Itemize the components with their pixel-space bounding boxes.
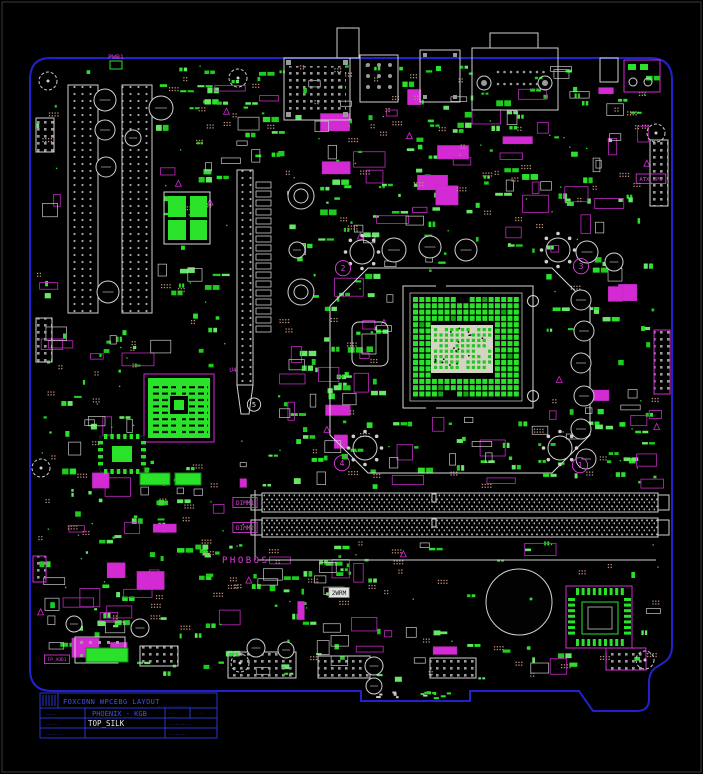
socket-pad [413,341,418,346]
speck [133,425,134,426]
smd-part [447,692,451,694]
via-cluster [577,198,578,199]
smd-part [107,540,113,544]
via-cluster [98,401,99,402]
via-cluster [379,477,380,478]
smd-part [263,117,270,122]
via-cluster [482,484,483,485]
smd-part [518,421,522,426]
via-cluster [310,656,311,657]
slot-pin [256,254,271,260]
via-cluster [634,183,635,184]
via-cluster [308,581,309,582]
via-cluster [401,121,402,122]
vga-connector-tab [490,33,538,48]
via-cluster [586,472,587,473]
socket-pad [514,335,519,340]
smd-part [303,427,307,432]
via-cluster [229,125,230,126]
sio-pad [568,626,575,629]
via-cluster [116,618,117,619]
vga-pin [523,71,526,74]
via-cluster [579,286,580,287]
via-cluster [207,540,208,541]
via-cluster [58,365,59,366]
via-cluster [159,615,160,616]
via-cluster [592,474,593,475]
via-cluster [228,588,229,589]
socket-pad [501,360,506,365]
smd-part [377,629,380,634]
triangle-marker [175,180,181,186]
smd-part [407,148,414,151]
smd-part [535,77,538,79]
smd-part [195,633,198,638]
smd-part [654,76,661,81]
cavity-pad [466,339,469,342]
socket-pad [426,303,431,308]
socket-pad [508,316,513,321]
via-cluster [159,604,160,605]
smd-part [481,93,484,95]
speck [569,146,570,147]
via-cluster [569,667,570,668]
smd-part [373,274,380,279]
via-cluster [502,649,503,650]
smd-part [609,452,613,455]
via-cluster [576,286,577,287]
cavity-pad [439,339,442,342]
smd-part [204,665,210,669]
via-cluster [58,368,59,369]
via-cluster [134,341,135,342]
via-cluster [316,449,317,450]
slot-pin [256,200,271,206]
via-cluster [161,284,162,285]
socket-pad [438,392,443,397]
super-io-chip [566,586,632,648]
smd-part [543,460,546,463]
smd-part [325,307,330,311]
via-cluster [204,110,205,111]
speck [586,148,587,149]
qfn-pad [110,469,113,474]
connector-outline [433,647,456,654]
via-cluster [240,587,241,588]
qfn-pad [117,434,120,439]
speck [306,607,307,608]
socket-pad [438,297,443,302]
via-cluster [201,110,202,111]
cavity-pad [477,366,480,369]
via-cluster [571,288,572,289]
speck [562,431,563,432]
via-cluster [542,227,543,228]
smd-part [324,456,328,461]
speck [448,230,449,231]
via-cluster [536,224,537,225]
smd-part [68,401,73,406]
socket-notch [436,284,446,289]
via-cluster [534,431,535,432]
smd-part [543,474,549,477]
smd-part [210,70,215,74]
via-cluster [371,124,372,125]
via-cluster [339,601,340,602]
socket-pad [508,385,513,390]
smd-part [217,102,222,105]
titleblock-project: FOXCONN WPCEBG LAYOUT [63,698,160,706]
via-cluster [71,528,72,529]
socket-pad [438,316,443,321]
via-cluster [490,484,491,485]
via-cluster [216,596,217,597]
smd-part [350,221,352,224]
socket-pad [413,392,418,397]
speck [551,544,552,545]
via-cluster [196,143,197,144]
via-cluster [630,114,631,115]
connector-pad [343,60,348,65]
via-cluster [156,618,157,619]
qfn-pad [141,462,146,465]
connector-pad [343,112,348,117]
via-cluster [534,429,535,430]
via-cluster [628,173,629,174]
via-cluster [342,601,343,602]
cavity-pad [456,333,459,336]
left-edge-connector [36,118,54,152]
pin-dot [547,435,551,439]
smd-part [568,328,574,330]
speck [413,599,414,600]
pin-dot [363,463,367,467]
via-cluster [635,111,636,112]
socket-pad [482,379,487,384]
cavity-pad [488,350,491,353]
socket-pad [419,297,424,302]
socket-pad [426,329,431,334]
smd-part [158,518,165,520]
via-cluster [392,552,393,553]
socket-pad [489,385,494,390]
socket-pad [514,392,519,397]
triangle-marker [556,376,562,382]
via-cluster [497,649,498,650]
via-cluster [386,111,387,112]
via-cluster [77,474,78,475]
socket-pad [495,316,500,321]
via-cluster [443,580,444,581]
socket-pad [419,329,424,334]
smd-part [646,342,650,347]
smd-part [336,572,343,576]
connector-outline [356,646,383,652]
via-cluster [162,499,163,500]
connector-outline [354,373,368,392]
via-cluster [49,112,50,113]
socket-pad [489,379,494,384]
via-cluster [500,649,501,650]
speck [134,520,135,521]
silk-outline [420,543,429,548]
slot-pin [256,236,271,242]
via-cluster [51,455,52,456]
via-cluster [161,598,162,599]
via-cluster [511,177,512,178]
smd-part [284,589,290,592]
smd-part [476,203,480,208]
speck [657,566,658,567]
pin-dot [375,458,379,462]
smd-part [272,131,278,134]
via-cluster [204,540,205,541]
cavity-pad [439,344,442,347]
via-cluster [426,641,427,642]
socket-pad [501,379,506,384]
smd-part [570,409,574,415]
via-cluster [465,190,466,191]
via-cluster [207,542,208,543]
via-cluster [355,342,356,343]
smd-part [532,657,535,663]
smd-part [429,270,432,272]
smd-part [103,613,106,619]
smd-part [607,460,611,463]
via-cluster [233,588,234,589]
via-cluster [582,570,583,571]
dimm-latch [658,520,669,535]
via-cluster [502,646,503,647]
smd-part [340,568,343,571]
silk-outline [44,578,65,585]
via-cluster [398,124,399,125]
smd-part [565,199,571,204]
via-cluster [647,653,648,654]
via-cluster [40,273,41,274]
south-qfn-chip [98,434,146,474]
smd-part [382,184,387,186]
via-cluster [459,187,460,188]
socket-pad [470,310,475,315]
smd-part [229,546,232,549]
socket-pad [495,322,500,327]
smd-part [270,585,276,591]
smd-part [263,484,267,486]
silk-outline [323,624,340,632]
via-cluster [450,474,451,475]
usb-header [140,646,178,666]
smd-part [99,499,103,503]
via-cluster [291,328,292,329]
via-cluster [652,603,653,604]
via-cluster [595,189,596,190]
via-cluster [350,342,351,343]
socket-pad [508,335,513,340]
cavity-pad [445,339,448,342]
via-cluster [159,618,160,619]
via-cluster [162,501,163,502]
speck [653,544,654,545]
via-cluster [487,213,488,214]
via-cluster [517,127,518,128]
smd-part [204,70,209,74]
smd-part [94,608,97,610]
socket-pad [482,297,487,302]
smd-part [628,197,632,202]
smd-part [338,555,341,558]
via-cluster [270,128,271,129]
via-cluster [577,201,578,202]
via-cluster [487,211,488,212]
via-cluster [488,175,489,176]
via-cluster [316,581,317,582]
connector-outline [322,162,350,174]
vga-pin [510,71,513,74]
vga-pin [523,83,526,86]
via-cluster [151,615,152,616]
via-cluster [384,590,385,591]
smd-part [371,331,373,333]
smd-part [589,177,593,183]
connector-outline [153,524,176,532]
via-cluster [85,534,86,535]
smd-part [401,422,407,425]
sio-pad [568,632,575,635]
via-cluster [366,170,367,171]
via-cluster [518,664,519,665]
via-cluster [576,288,577,289]
via-cluster [236,585,237,586]
smd-part [371,391,378,395]
via-cluster [461,147,462,148]
via-cluster [207,124,208,125]
via-cluster [603,656,604,657]
via-cluster [419,185,420,186]
via-cluster [539,429,540,430]
via-cluster [622,173,623,174]
silk-outline [317,472,326,485]
smd-part [396,696,399,698]
smd-part [509,126,512,129]
via-cluster [186,626,187,627]
silk-outline [354,225,362,232]
smd-part [184,68,187,72]
sio-pad [624,620,631,623]
cavity-pad [472,339,475,342]
cavity-pad [472,344,475,347]
connector-outline [436,186,458,205]
via-cluster [373,362,374,363]
via-cluster [350,410,351,411]
pin-dot [542,446,546,450]
via-cluster [485,487,486,488]
via-cluster [497,171,498,172]
via-cluster [564,667,565,668]
via-cluster [196,467,197,468]
cavity-pad [445,350,448,353]
smd-part [436,548,442,550]
smd-part [61,401,66,406]
socket-pad [489,310,494,315]
via-cluster [236,580,237,581]
smd-part [70,469,76,475]
cavity-pad [488,333,491,336]
smd-part [504,193,512,196]
smd-part [99,540,105,544]
smd-part [392,692,396,694]
via-cluster [202,143,203,144]
socket-pad [457,392,462,397]
slot-pin [256,245,271,251]
qfn-thermal-pad [112,446,132,462]
via-cluster [633,111,634,112]
cavity-pad [472,355,475,358]
cavity-pad [461,350,464,353]
smd-part [638,481,640,484]
via-cluster [497,174,498,175]
smd-part [184,499,190,503]
socket-pad [419,379,424,384]
socket-pad [457,379,462,384]
smd-part [429,222,432,227]
smd-part [355,280,361,282]
smd-part [409,82,414,87]
via-cluster [354,138,355,139]
via-cluster [224,122,225,123]
via-cluster [647,656,648,657]
via-cluster [113,615,114,616]
via-cluster [401,124,402,125]
smd-part [232,80,235,83]
board-drawing-viewport[interactable]: PWB1ATX_CPUDIMM1DIMM2PHOBOSFP_AUD1U42WRM… [0,0,703,774]
mounting-hole-icon [237,77,240,80]
chipset-core-pad [174,400,184,410]
smd-part [245,102,251,105]
via-cluster [410,74,411,75]
socket-pad [508,303,513,308]
via-cluster [638,125,639,126]
smd-part [275,605,278,607]
via-cluster [383,134,384,135]
via-cluster [183,291,184,292]
smd-part [465,66,468,69]
silk-outline [221,158,240,164]
smd-part [641,630,643,635]
cavity-speck [455,350,457,352]
cavity-pad [477,344,480,347]
via-cluster [351,138,352,139]
smd-part [186,467,190,470]
via-cluster [376,362,377,363]
socket-pad [476,392,481,397]
qfn-pad [130,469,133,474]
via-cluster [356,228,357,229]
via-cluster [392,96,393,97]
via-cluster [655,401,656,402]
socket-pad [451,379,456,384]
smd-part [120,337,122,342]
via-cluster [368,173,369,174]
socket-pad [432,310,437,315]
via-cluster [272,552,273,553]
via-cluster [515,220,516,221]
connector-pin [629,78,637,86]
slot-pin [256,326,271,332]
via-cluster [573,286,574,287]
smd-part [331,307,336,311]
via-cluster [269,552,270,553]
